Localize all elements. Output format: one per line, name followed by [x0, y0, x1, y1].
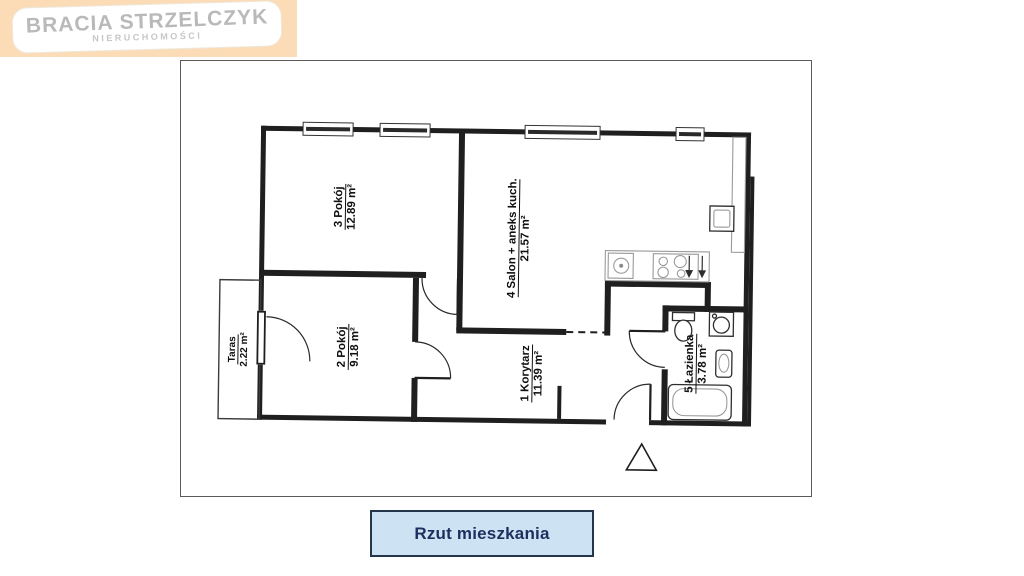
kitchen-side-counter: [731, 137, 746, 252]
room-label-salon: 4 Salon + aneks kuch. 21.57 m²: [506, 178, 533, 298]
agency-logo: BRACIA STRZELCZYK NIERUCHOMOŚCI: [0, 0, 297, 57]
agency-name: BRACIA STRZELCZYK: [25, 7, 268, 36]
room-area: 12.89 m²: [346, 184, 359, 230]
room-name: 5 Łazienka: [683, 334, 696, 393]
washing-machine-icon: [709, 312, 733, 336]
room-name: Taras: [227, 336, 238, 363]
room-area: 21.57 m²: [519, 215, 532, 261]
floor-plan-drawing: 3 Pokój 12.89 m² 4 Salon + aneks kuch. 2…: [181, 61, 811, 496]
room-name: 2 Pokój: [336, 326, 349, 367]
room-3-door: [422, 278, 458, 314]
bathroom-sink-icon: [716, 350, 732, 377]
room-area: 9.18 m²: [349, 327, 362, 367]
room-label-taras: Taras 2.22 m²: [227, 331, 250, 366]
room-area: 11.39 m²: [532, 351, 545, 397]
room-name: 1 Korytarz: [519, 345, 532, 402]
entrance-door: [614, 384, 650, 420]
agency-logo-banner: BRACIA STRZELCZYK NIERUCHOMOŚCI: [12, 1, 281, 52]
room-area: 2.22 m²: [239, 332, 250, 367]
room-area: 3.78 m²: [697, 344, 710, 384]
window-icon: [380, 123, 430, 137]
room-name: 3 Pokój: [333, 186, 346, 227]
floor-plan-frame: 3 Pokój 12.89 m² 4 Salon + aneks kuch. 2…: [180, 60, 812, 497]
kitchen-sink-icon: [608, 253, 633, 278]
stove-icon: [653, 254, 698, 280]
room-name: 4 Salon + aneks kuch.: [506, 178, 520, 298]
window-icon: [303, 122, 353, 136]
room-2-door: [415, 342, 451, 378]
window-icon: [525, 125, 600, 139]
balcony-door: [256, 311, 311, 366]
open-passage-dashed-line: [566, 332, 610, 333]
window-icon: [676, 127, 704, 140]
plan-caption-button[interactable]: Rzut mieszkania: [370, 510, 594, 557]
wall-cabinet-sink-icon: [710, 206, 734, 231]
bathtub-icon: [668, 384, 731, 420]
room-label-pokoj-3: 3 Pokój 12.89 m²: [333, 184, 359, 231]
bathroom-door: [629, 331, 665, 367]
entrance-triangle-icon: [626, 444, 656, 470]
kitchen-counter: [605, 136, 746, 283]
room-label-pokoj-2: 2 Pokój 9.18 m²: [336, 324, 362, 370]
room-label-korytarz: 1 Korytarz 11.39 m²: [519, 344, 545, 402]
